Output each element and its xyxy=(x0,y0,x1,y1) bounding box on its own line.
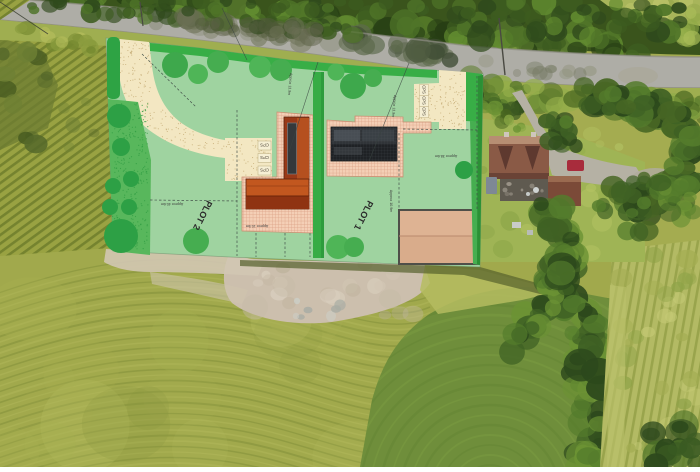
svg-text:CPS: CPS xyxy=(422,96,427,105)
svg-text:Approx 10.9m: Approx 10.9m xyxy=(389,190,393,212)
svg-text:CPS: CPS xyxy=(422,107,427,116)
svg-text:CPS: CPS xyxy=(260,143,269,148)
svg-text:CPS: CPS xyxy=(422,85,427,94)
svg-text:Approx 38.6m: Approx 38.6m xyxy=(435,154,457,158)
svg-text:CPS: CPS xyxy=(260,168,269,173)
svg-text:CPS: CPS xyxy=(260,155,269,160)
svg-text:Approx 10.5m: Approx 10.5m xyxy=(246,224,268,228)
svg-text:Approx 40.6m: Approx 40.6m xyxy=(161,202,183,206)
